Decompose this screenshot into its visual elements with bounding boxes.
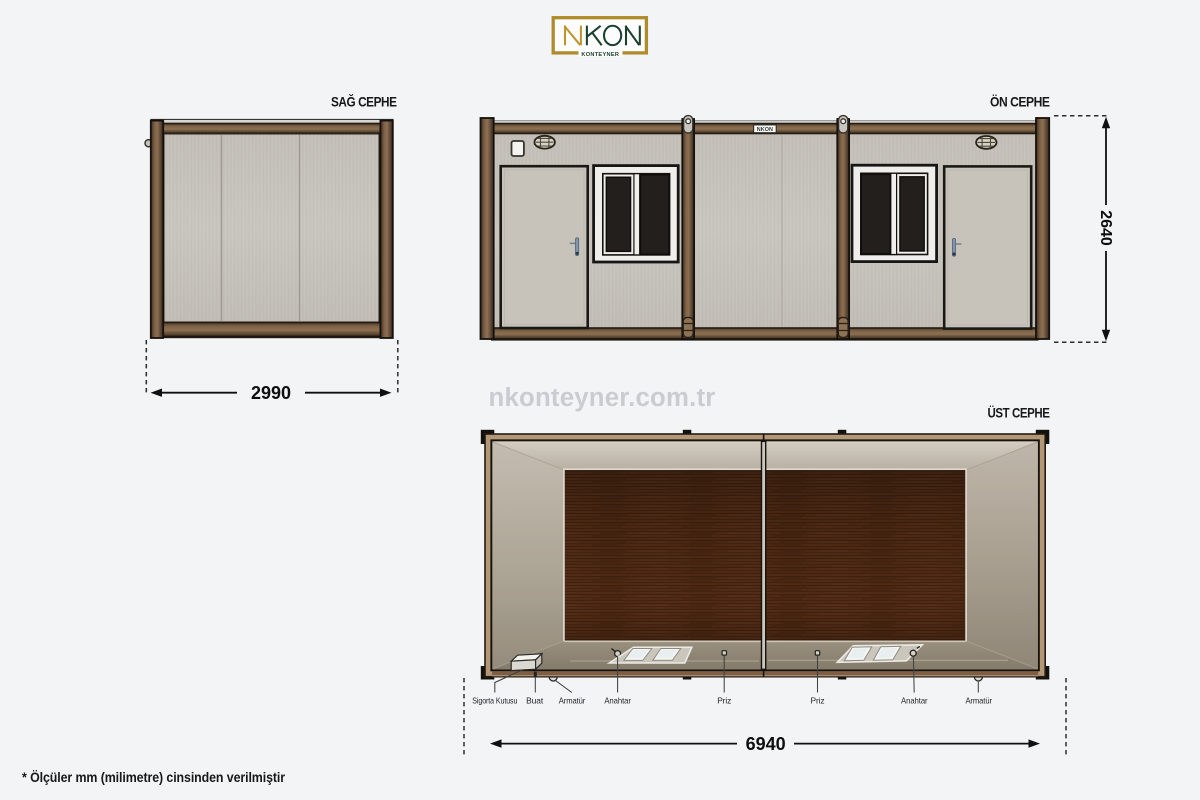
svg-text:Anahtar: Anahtar (604, 696, 631, 706)
svg-text:* Ölçüler mm (milimetre) cinsi: * Ölçüler mm (milimetre) cinsinden veril… (22, 770, 286, 785)
svg-text:SAĞ CEPHE: SAĞ CEPHE (331, 95, 397, 110)
svg-text:2640: 2640 (1097, 210, 1114, 246)
svg-text:Sigorta Kutusu: Sigorta Kutusu (472, 696, 517, 706)
svg-text:Buat: Buat (526, 696, 544, 706)
svg-text:Armatür: Armatür (965, 696, 992, 706)
svg-text:Armatür: Armatür (559, 696, 586, 706)
svg-text:KONTEYNER: KONTEYNER (581, 52, 619, 58)
svg-text:nkonteyner.com.tr: nkonteyner.com.tr (489, 384, 716, 412)
svg-text:2990: 2990 (251, 383, 291, 403)
svg-text:NKON: NKON (757, 127, 773, 133)
svg-text:6940: 6940 (746, 734, 786, 754)
svg-text:ÜST CEPHE: ÜST CEPHE (988, 406, 1050, 421)
svg-text:Anahtar: Anahtar (901, 696, 928, 706)
svg-text:Priz: Priz (811, 696, 825, 706)
svg-text:ÖN CEPHE: ÖN CEPHE (990, 95, 1050, 110)
svg-text:Priz: Priz (717, 696, 731, 706)
